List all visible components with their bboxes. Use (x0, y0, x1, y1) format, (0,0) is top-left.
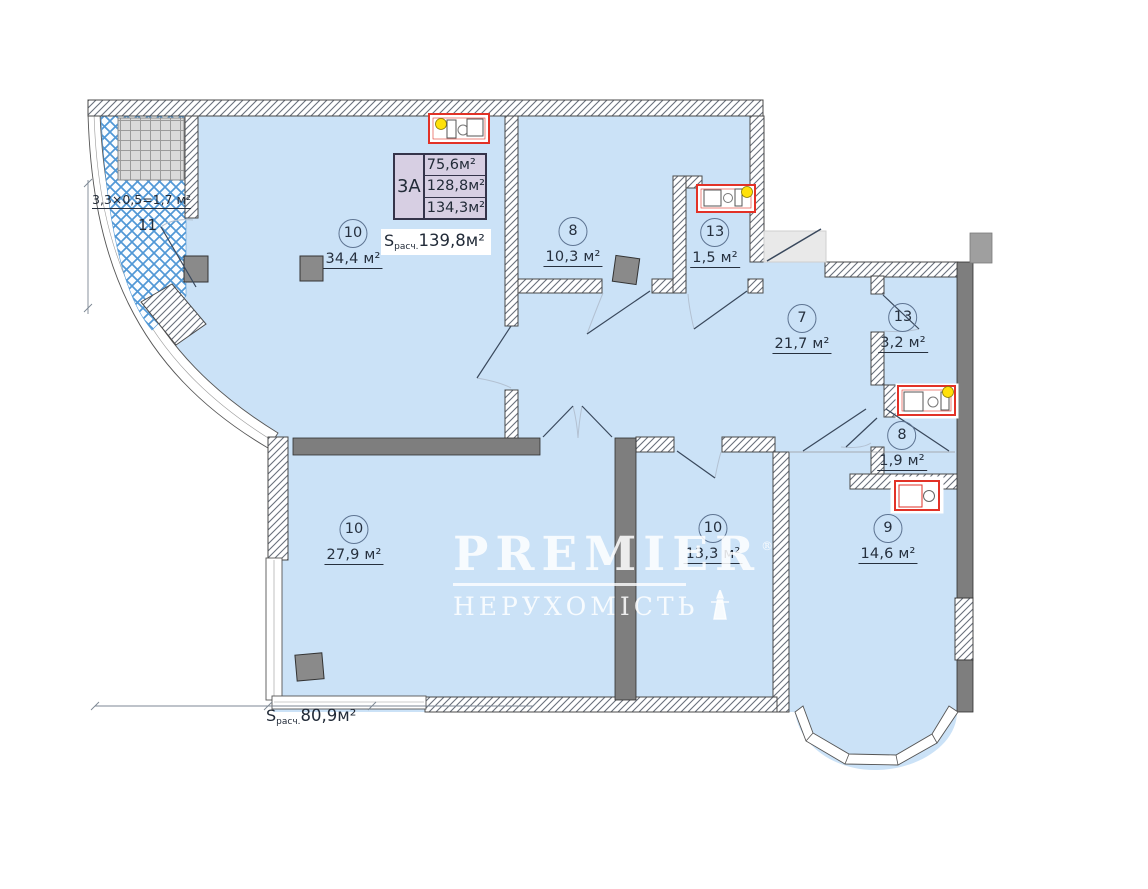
neighbor-wall (970, 233, 992, 263)
floor-plan-drawing (0, 0, 1148, 889)
column (612, 255, 639, 284)
washing-machine-icon (891, 477, 943, 513)
bathroom-sink-icon (896, 384, 958, 418)
floor-plan-page: 3А 75,6м² 128,8м² 134,3м² Sрасч.139,8м² … (0, 0, 1148, 889)
column (295, 653, 324, 681)
legend-area-row: 134,3м² (425, 198, 485, 218)
apartment-type-label: 3А (395, 155, 425, 218)
kitchen-unit-icon (429, 114, 489, 143)
balcony-tiled-square (118, 118, 184, 180)
apartment-legend: 3А 75,6м² 128,8м² 134,3м² (393, 153, 487, 220)
column (300, 256, 323, 281)
bathroom-sink-icon (697, 185, 755, 212)
apartment-areas: 75,6м² 128,8м² 134,3м² (425, 155, 485, 218)
legend-area-row: 75,6м² (425, 155, 485, 175)
entrance (764, 229, 826, 262)
column (184, 256, 208, 282)
legend-area-row: 128,8м² (425, 175, 485, 197)
